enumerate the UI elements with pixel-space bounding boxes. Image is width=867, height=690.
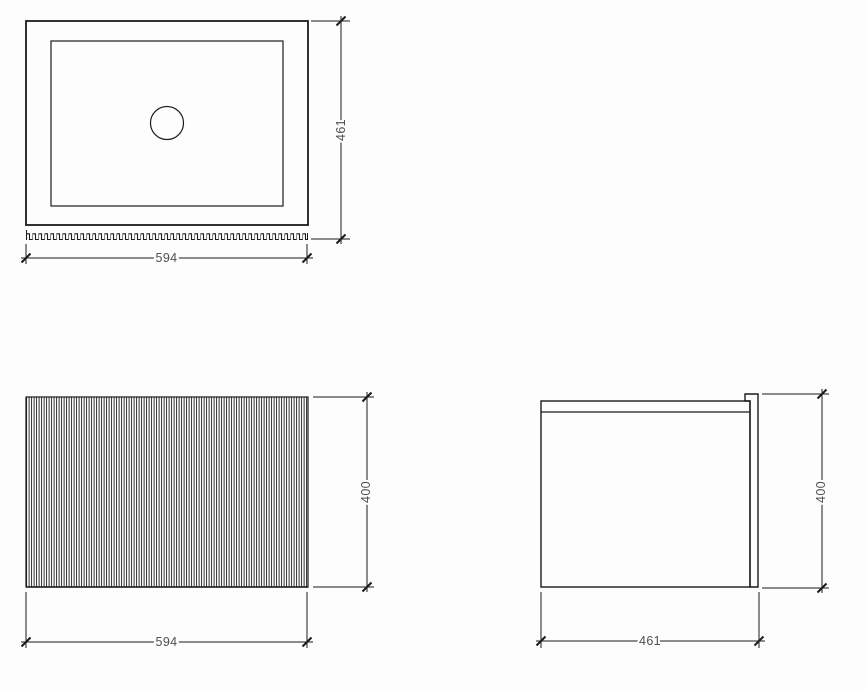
drawing-sheet: 461 594 400 [0, 0, 867, 690]
dimension-label: 461 [639, 634, 661, 648]
top-view-fluted-edge [27, 230, 308, 240]
front-view: 400 594 [21, 392, 374, 649]
dimension-label: 594 [155, 251, 177, 265]
dimension-label: 400 [359, 481, 373, 503]
flute-pattern-fill [26, 397, 308, 587]
top-view: 461 594 [21, 16, 350, 265]
side-view-body-outline [541, 401, 750, 587]
dim-front-height: 400 [313, 392, 374, 592]
dimension-label: 594 [155, 635, 177, 649]
dim-side-width: 461 [536, 592, 765, 648]
dimension-label: 400 [814, 481, 828, 503]
drain-hole-circle [151, 107, 184, 140]
dimension-label: 461 [334, 119, 348, 141]
crenellation-pattern [27, 233, 308, 240]
dim-top-width: 594 [21, 244, 313, 265]
dim-top-height: 461 [311, 16, 350, 244]
dim-side-height: 400 [762, 389, 829, 593]
technical-drawing-canvas: 461 594 400 [0, 0, 867, 690]
dim-front-width: 594 [21, 592, 313, 649]
side-view-back-panel [745, 394, 758, 587]
top-view-basin-rect [51, 41, 283, 206]
side-view: 400 461 [536, 389, 829, 648]
top-view-outline [26, 21, 308, 225]
